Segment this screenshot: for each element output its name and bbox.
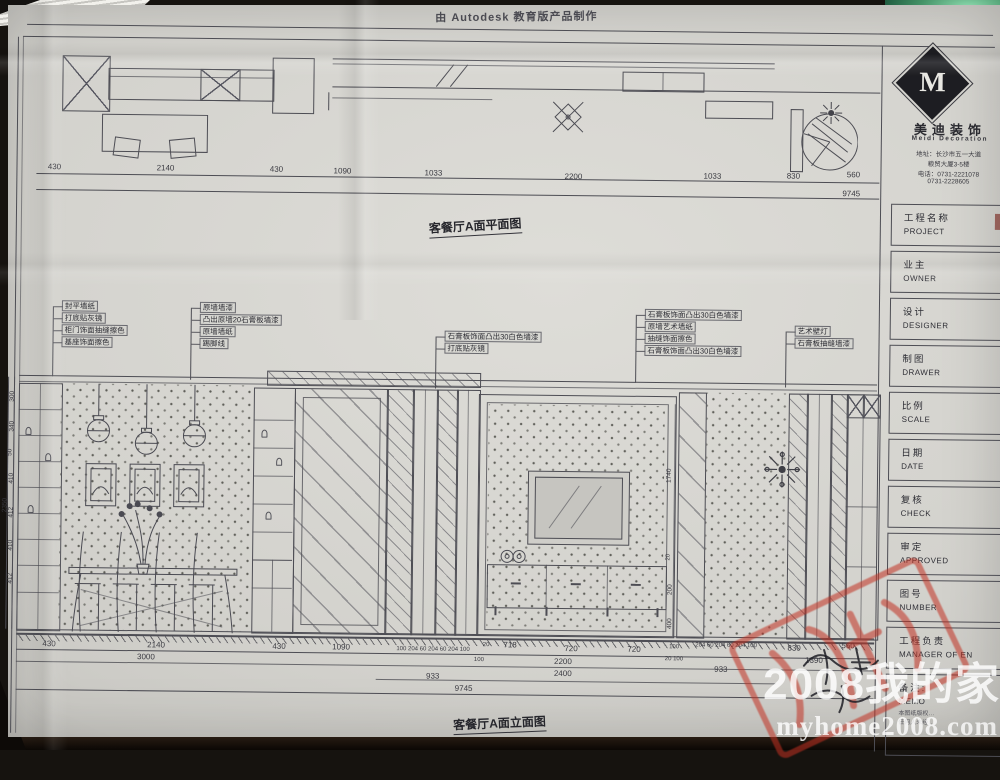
plan-dim: 2200 (564, 172, 582, 181)
callout-label: 封平墙纸 (62, 300, 98, 311)
company-name-en: Meidi Decoration (890, 135, 1000, 143)
right-vdim: 20 (665, 554, 671, 561)
elev-dim-total: 9745 (455, 684, 473, 693)
project-value-partial (995, 214, 1000, 230)
callout-label: 打底贴灰镜 (62, 312, 106, 323)
tv-cabinet-leg (494, 606, 496, 615)
plan-dim: 430 (270, 165, 283, 174)
elev-dim: 430 (42, 639, 55, 648)
field-drawer: 制图 DRAWER (889, 345, 1000, 388)
left-vdim-total: 2350 (1, 498, 8, 513)
dining-table (68, 567, 237, 633)
field-label-cn: 比例 (902, 398, 1000, 413)
field-label-en: CHECK (901, 509, 1000, 519)
callout-label: 原墙墙纸 (200, 326, 236, 337)
plan-dim-total: 9745 (842, 189, 860, 198)
plan-wall-tick (328, 92, 329, 110)
callout-label: 踢脚线 (199, 338, 228, 349)
watermark-line1: 2008我的家 (763, 648, 1000, 712)
callout-leader-far-right (785, 332, 787, 388)
callout-label: 石膏板饰面凸出30白色墙漆 (644, 345, 741, 357)
tv-cabinet (487, 564, 667, 610)
dining-area-furniture (58, 375, 256, 639)
callout-label: 石膏板抽缝墙漆 (794, 338, 853, 350)
cabinet-goblet-icon (261, 430, 267, 438)
plan-chair-1 (113, 136, 141, 158)
cabinet-goblet-icon (45, 453, 51, 461)
photo-scene: 由 Autodesk 教育版产品制作 (0, 0, 1000, 750)
elev-dim: 718 (503, 640, 516, 649)
elev-dim: 3000 (137, 652, 155, 661)
tv-cabinet-handle (631, 584, 641, 586)
tv-cabinet-leg (656, 608, 658, 617)
right-vdim: 200 (667, 584, 674, 595)
elev-dim: 2200 (554, 657, 572, 666)
field-label-cn: 复核 (901, 492, 1000, 507)
elev-dim: 933 (714, 665, 727, 674)
elev-dim: 2400 (554, 669, 572, 678)
callout-label: 石膏板饰面凸出30白色墙漆 (445, 331, 542, 343)
field-label-cn: 日期 (901, 445, 1000, 460)
cabinet-goblet-icon (266, 512, 272, 520)
left-vdim-line-2 (11, 377, 15, 629)
elev-dim: 20 100 (665, 656, 683, 662)
elev-dim: 720 (564, 644, 577, 653)
field-label-en: DRAWER (902, 368, 1000, 378)
field-scale: 比例 SCALE (889, 392, 1000, 435)
wall-picture-frames (86, 464, 204, 507)
table-plant (118, 501, 162, 574)
left-vdim: 410 (7, 540, 14, 551)
plan-dim: 430 (48, 162, 61, 171)
field-label-cn: 工程名称 (904, 210, 1000, 225)
wallpaper-dotted-right (704, 393, 789, 638)
plan-dim: 1033 (703, 172, 721, 181)
left-vdim: 50 (6, 449, 13, 456)
plan-dim-line (36, 173, 879, 184)
callout-label: 抽缝饰面擦色 (645, 333, 696, 345)
tall-cabinet (251, 387, 296, 633)
field-label-en: SCALE (902, 415, 1000, 425)
right-vdim: 400 (666, 618, 673, 629)
sheet-border-top-1 (27, 24, 993, 36)
plan-counter-band (108, 68, 274, 102)
left-vdim: 412 (7, 507, 14, 518)
sheet-border-top-2 (23, 36, 995, 48)
field-check: 复核 CHECK (887, 486, 1000, 529)
company-logo: M (896, 46, 970, 120)
plan-ceiling-light-symbol (550, 99, 586, 135)
plan-dim: 560 (847, 170, 860, 179)
callout-label: 打底贴灰镜 (444, 343, 488, 354)
right-vdim: 1740 (666, 468, 673, 483)
elevation-beam-band (267, 371, 481, 388)
elevation-title: 客餐厅A面立面图 (453, 712, 546, 735)
elev-dim: 1090 (332, 642, 350, 651)
company-phone-2: 0731-2228605 (887, 178, 1000, 186)
callout-label: 柜门饰面抽缝擦色 (62, 324, 128, 336)
field-label-cn: 业主 (903, 257, 1000, 272)
cabinet-goblet-icon (276, 458, 282, 466)
plan-cabinet-crossed-left (62, 55, 111, 112)
cabinet-goblet-icon (25, 427, 31, 435)
field-label-cn: 制图 (902, 351, 1000, 366)
callout-label: 石膏板饰面凸出30白色墙漆 (645, 309, 742, 321)
field-label-cn: 设计 (903, 304, 1000, 319)
left-vdim: 412 (7, 573, 14, 584)
elev-dim: 100 (669, 644, 679, 650)
plan-cabinet-right (272, 58, 315, 114)
callout-label: 原墙艺术墙纸 (645, 321, 696, 333)
callout-label: 艺术壁灯 (795, 326, 831, 337)
field-label-en: DESIGNER (903, 321, 1000, 331)
left-vdim: 340 (8, 421, 15, 432)
tv-cabinet-leg (545, 607, 547, 616)
plan-wall-line-4 (332, 97, 492, 100)
elev-dim: 100 204 60 204 60 204 100 (396, 646, 469, 653)
pendant-lamp-icon (87, 384, 206, 455)
plan-chair-2 (169, 137, 197, 158)
field-project: 工程名称 PROJECT (891, 204, 1000, 247)
elev-dim: 720 (627, 645, 640, 654)
callout-leader-right (635, 315, 637, 383)
callout-label: 基座饰面擦色 (61, 336, 112, 348)
field-owner: 业主 OWNER (890, 251, 1000, 294)
dining-chairs (74, 531, 215, 633)
left-vdim: 410 (8, 473, 15, 484)
field-label-en: OWNER (903, 274, 1000, 284)
plan-wall-line-3 (332, 86, 880, 93)
mirror-panel-inner (300, 397, 381, 626)
elev-dim: 430 (272, 642, 285, 651)
right-cabinet-crossed-door (863, 394, 881, 418)
field-designer: 设计 DESIGNER (890, 298, 1000, 341)
plan-dim: 2140 (157, 163, 175, 172)
tv-cabinet-handle (511, 582, 521, 584)
plan-dim: 830 (787, 172, 800, 181)
plan-cabinet-crossed-mid (200, 69, 240, 101)
plan-total-line (36, 189, 879, 200)
callout-label: 凸出原墙20石膏板墙漆 (200, 314, 282, 326)
plan-shelf-right-divider (662, 72, 663, 90)
field-label-en: DATE (901, 462, 1000, 472)
plan-dim: 1090 (334, 166, 352, 175)
autodesk-banner: 由 Autodesk 教育版产品制作 (435, 8, 597, 26)
elev-dim: 2140 (147, 640, 165, 649)
callout-label: 原墙墙漆 (200, 302, 236, 313)
drawing-sheet: 由 Autodesk 教育版产品制作 (0, 0, 1000, 758)
field-date: 日期 DATE (888, 439, 1000, 482)
elev-dim: 20 (483, 642, 490, 648)
left-vdim: 300 (9, 391, 16, 402)
plan-sideboard-right (705, 101, 773, 120)
field-label-en: PROJECT (904, 227, 1000, 237)
elev-dim: 100 (474, 657, 484, 663)
tv-cabinet-leg (606, 607, 608, 616)
plan-dim: 1033 (425, 168, 443, 177)
mirror-column (676, 392, 707, 638)
logo-letter: M (906, 57, 959, 110)
cabinet-goblet-icon (28, 505, 34, 513)
watermark-line2: myhome2008.com (776, 711, 998, 742)
plan-diagonal-mark-2 (450, 65, 468, 87)
plan-wall-line-2 (333, 63, 775, 69)
tv-cabinet-handle (571, 583, 581, 585)
elev-dim: 933 (426, 671, 439, 680)
tv-cabinet-decor (500, 548, 526, 564)
plan-flower-symbol (818, 100, 844, 126)
plan-title: 客餐厅A面平面图 (428, 214, 522, 238)
